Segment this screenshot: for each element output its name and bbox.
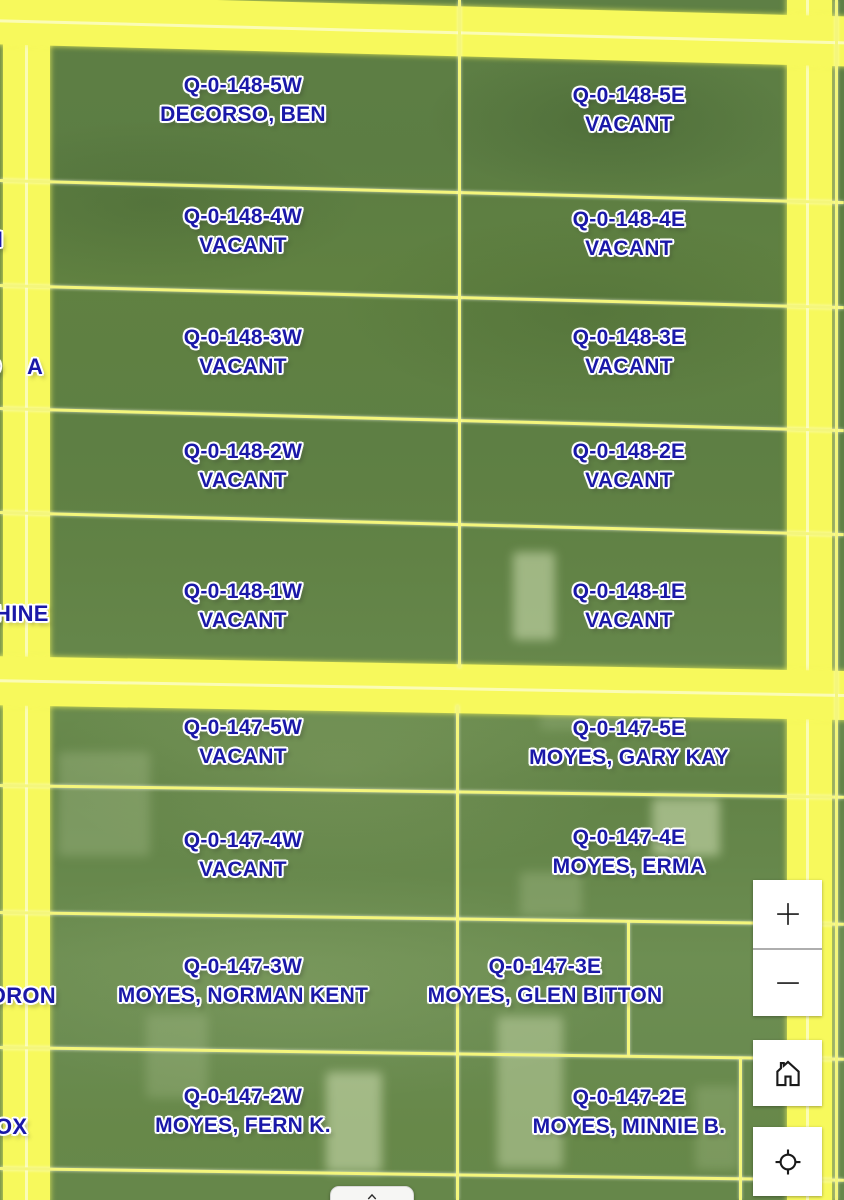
parcel-label[interactable]: Q-0-147-2W MOYES, FERN K. — [155, 1082, 331, 1140]
parcel-owner: VACANT — [184, 606, 303, 635]
parcel-id: Q-0-148-5W — [160, 71, 326, 100]
attribution-toggle[interactable] — [330, 1186, 414, 1200]
map-viewport: Q-0-148-5W DECORSO, BEN Q-0-148-5E VACAN… — [0, 0, 844, 1200]
parcel-owner: MOYES, MINNIE B. — [533, 1112, 726, 1141]
parcel-id: Q-0-147-5E — [529, 714, 729, 743]
parcel-id: Q-0-148-4E — [573, 205, 686, 234]
parcel-owner: VACANT — [184, 855, 303, 884]
parcel-id: Q-0-147-2E — [533, 1083, 726, 1112]
parcel-boundary — [0, 911, 844, 926]
building-footprint — [326, 1072, 382, 1172]
parcel-boundary — [0, 1046, 844, 1061]
parcel-id: Q-0-148-3W — [184, 323, 303, 352]
parcel-id: Q-0-147-2W — [155, 1082, 331, 1111]
home-icon — [771, 1056, 805, 1090]
parcel-owner: MOYES, GLEN BITTON — [428, 981, 663, 1010]
parcel-label[interactable]: Q-0-148-3E VACANT — [573, 323, 686, 381]
parcel-owner: MOYES, NORMAN KENT — [118, 981, 368, 1010]
parcel-owner: VACANT — [184, 466, 303, 495]
parcel-boundary — [0, 284, 844, 309]
road-horizontal-middle — [0, 656, 844, 720]
road-horizontal-top — [0, 0, 844, 67]
parcel-owner: VACANT — [573, 110, 686, 139]
parcel-label[interactable]: Q-0-147-2E MOYES, MINNIE B. — [533, 1083, 726, 1141]
zoom-out-button[interactable] — [753, 948, 822, 1016]
parcel-label[interactable]: Q-0-148-4W VACANT — [184, 202, 303, 260]
road-centerline — [0, 19, 844, 45]
parcel-id: Q-0-148-2W — [184, 437, 303, 466]
parcel-owner: DECORSO, BEN — [160, 100, 326, 129]
parcel-id: Q-0-148-3E — [573, 323, 686, 352]
map-canvas[interactable]: Q-0-148-5W DECORSO, BEN Q-0-148-5E VACAN… — [0, 0, 844, 1200]
home-button[interactable] — [753, 1040, 822, 1106]
parcel-owner: VACANT — [573, 352, 686, 381]
parcel-owner: VACANT — [573, 466, 686, 495]
road-vertical-right — [787, 0, 832, 1200]
plus-icon — [775, 901, 801, 927]
parcel-label[interactable]: Q-0-148-5W DECORSO, BEN — [160, 71, 326, 129]
parcel-boundary — [0, 179, 844, 204]
parcel-id: Q-0-148-5E — [573, 81, 686, 110]
chevron-up-icon — [361, 1187, 383, 1200]
parcel-label[interactable]: Q-0-147-5E MOYES, GARY KAY — [529, 714, 729, 772]
minus-icon — [775, 970, 801, 996]
locate-icon — [771, 1145, 805, 1179]
building-footprint — [58, 752, 150, 856]
parcel-label[interactable]: Q-0-148-4E VACANT — [573, 205, 686, 263]
road-centerline — [806, 0, 809, 1200]
parcel-label[interactable]: Q-0-147-4W VACANT — [184, 826, 303, 884]
parcel-label[interactable]: Q-0-148-2W VACANT — [184, 437, 303, 495]
parcel-owner: VACANT — [184, 352, 303, 381]
parcel-boundary — [835, 0, 838, 1200]
edge-label-partial: N — [0, 227, 3, 253]
parcel-id: Q-0-148-2E — [573, 437, 686, 466]
edge-label-partial: O — [0, 354, 1, 380]
edge-label-partial: A — [27, 354, 43, 380]
parcel-owner: VACANT — [184, 742, 303, 771]
building-footprint — [513, 552, 555, 640]
parcel-label[interactable]: Q-0-148-3W VACANT — [184, 323, 303, 381]
edge-label-partial: DRON — [0, 983, 56, 1009]
parcel-owner: MOYES, ERMA — [553, 852, 706, 881]
parcel-owner: VACANT — [573, 606, 686, 635]
parcel-boundary — [739, 1058, 742, 1200]
parcel-boundary — [458, 0, 461, 668]
parcel-boundary — [0, 511, 844, 536]
parcel-label[interactable]: Q-0-147-4E MOYES, ERMA — [553, 823, 706, 881]
parcel-id: Q-0-148-1E — [573, 577, 686, 606]
parcel-label[interactable]: Q-0-148-2E VACANT — [573, 437, 686, 495]
parcel-label[interactable]: Q-0-147-5W VACANT — [184, 713, 303, 771]
parcel-id: Q-0-147-5W — [184, 713, 303, 742]
parcel-id: Q-0-147-4E — [553, 823, 706, 852]
parcel-owner: VACANT — [573, 234, 686, 263]
parcel-label[interactable]: Q-0-147-3W MOYES, NORMAN KENT — [118, 952, 368, 1010]
zoom-in-button[interactable] — [753, 880, 822, 948]
edge-label-partial: HINE — [0, 601, 49, 627]
parcel-label[interactable]: Q-0-147-3E MOYES, GLEN BITTON — [428, 952, 663, 1010]
parcel-label[interactable]: Q-0-148-1E VACANT — [573, 577, 686, 635]
parcel-owner: MOYES, FERN K. — [155, 1111, 331, 1140]
edge-label-partial: OX — [0, 1114, 27, 1140]
parcel-label[interactable]: Q-0-148-5E VACANT — [573, 81, 686, 139]
zoom-control — [753, 880, 822, 1016]
parcel-id: Q-0-147-3E — [428, 952, 663, 981]
parcel-label[interactable]: Q-0-148-1W VACANT — [184, 577, 303, 635]
parcel-id: Q-0-148-1W — [184, 577, 303, 606]
parcel-owner: VACANT — [184, 231, 303, 260]
locate-button[interactable] — [753, 1127, 822, 1196]
parcel-id: Q-0-147-3W — [118, 952, 368, 981]
parcel-id: Q-0-148-4W — [184, 202, 303, 231]
parcel-id: Q-0-147-4W — [184, 826, 303, 855]
parcel-owner: MOYES, GARY KAY — [529, 743, 729, 772]
road-centerline — [0, 679, 844, 697]
parcel-boundary — [0, 407, 844, 432]
